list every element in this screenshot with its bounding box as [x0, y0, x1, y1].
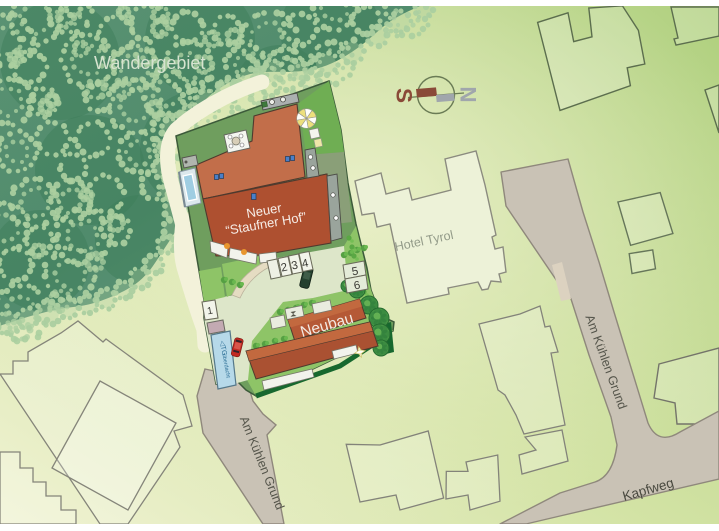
- svg-text:N: N: [456, 86, 481, 102]
- svg-text:Wandergebiet: Wandergebiet: [94, 53, 205, 73]
- svg-text:S: S: [392, 88, 417, 103]
